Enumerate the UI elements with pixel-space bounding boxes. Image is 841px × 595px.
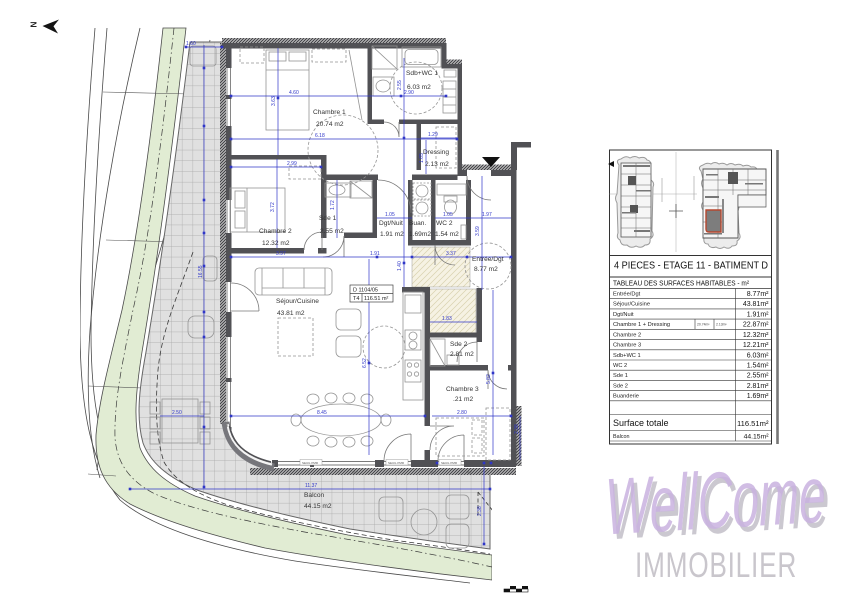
svg-text:6.03 m2: 6.03 m2 [407,84,431,91]
svg-text:Chambre 1: Chambre 1 [313,109,346,116]
svg-text:1.83: 1.83 [442,316,452,322]
svg-text:SEUIL PMR: SEUIL PMR [388,461,405,465]
svg-text:3.37: 3.37 [446,251,456,257]
svg-text:1.69m2: 1.69m2 [409,231,431,238]
svg-text:Séjour/Cuisine: Séjour/Cuisine [613,302,650,308]
svg-text:5.82: 5.82 [486,374,492,384]
svg-text:IMMOBILIER: IMMOBILIER [635,545,797,585]
svg-text:1.29: 1.29 [428,132,438,138]
svg-text:.21 m2: .21 m2 [453,396,473,403]
svg-text:43.81 m2: 43.81 m2 [277,310,305,317]
svg-text:1.91: 1.91 [370,251,380,257]
svg-text:2.50: 2.50 [172,410,182,416]
svg-text:1.54m²: 1.54m² [747,363,769,370]
svg-text:1.91m²: 1.91m² [747,311,769,318]
svg-text:22.87m²: 22.87m² [743,322,769,329]
svg-text:1.69m²: 1.69m² [747,393,769,400]
svg-text:D 1104/05: D 1104/05 [353,288,378,294]
svg-text:44.15m²: 44.15m² [744,434,770,441]
svg-text:Dressing: Dressing [423,149,449,156]
svg-text:TABLEAU DES SURFACES HABITABLE: TABLEAU DES SURFACES HABITABLES - m² [613,279,749,288]
svg-text:3.59: 3.59 [475,226,481,236]
svg-text:Chambre 2: Chambre 2 [613,332,641,338]
svg-text:3.97: 3.97 [276,251,286,257]
svg-text:Sdb+WC 1: Sdb+WC 1 [406,70,438,77]
svg-text:Entrée/Dgt: Entrée/Dgt [613,292,641,298]
svg-text:Chambre 3: Chambre 3 [446,386,479,393]
svg-text:Entrée/Dgt: Entrée/Dgt [472,256,504,263]
svg-text:1.60: 1.60 [186,41,196,47]
svg-text:BSO: BSO [352,471,359,475]
svg-text:8.77m²: 8.77m² [747,291,769,298]
svg-text:1.40: 1.40 [397,261,403,271]
svg-text:PRE: PRE [466,471,472,475]
svg-text:4.60: 4.60 [289,90,299,96]
svg-text:2.81m²: 2.81m² [747,383,769,390]
svg-text:Sdb+WC 1: Sdb+WC 1 [613,353,641,359]
svg-text:116.51 m²: 116.51 m² [364,296,389,302]
svg-text:1.54 m2: 1.54 m2 [435,231,459,238]
svg-text:2.55 m2: 2.55 m2 [320,228,344,235]
svg-text:20.74m²: 20.74m² [697,323,710,327]
svg-text:8.45: 8.45 [317,410,327,416]
svg-text:20.74 m2: 20.74 m2 [316,121,344,128]
svg-text:1.72: 1.72 [330,200,336,210]
svg-text:1.91 m2: 1.91 m2 [380,231,404,238]
svg-text:Dgt/Nuit: Dgt/Nuit [613,312,634,318]
svg-text:Buanderie: Buanderie [613,394,639,400]
svg-text:12.32 m2: 12.32 m2 [262,240,290,247]
svg-text:Chambre 3: Chambre 3 [613,343,641,349]
svg-text:WellCome: WellCome [604,449,826,552]
svg-text:16.55: 16.55 [198,265,204,278]
svg-text:6.03m²: 6.03m² [747,352,769,359]
svg-text:T4: T4 [353,296,359,302]
svg-text:12.32m²: 12.32m² [743,332,769,339]
svg-text:SEUIL PMR: SEUIL PMR [441,461,458,465]
svg-text:116.51m²: 116.51m² [737,419,769,428]
svg-text:44.15 m2: 44.15 m2 [304,503,332,510]
svg-text:Chambre 1 + Dressing: Chambre 1 + Dressing [613,322,670,328]
svg-text:Balcon: Balcon [613,434,629,440]
svg-text:2.13 m2: 2.13 m2 [425,161,449,168]
svg-text:Dgt/Nuit: Dgt/Nuit [379,220,403,227]
svg-text:Séjour/Cuisine: Séjour/Cuisine [276,298,319,305]
svg-text:Sde 2: Sde 2 [450,341,468,348]
svg-text:43.81m²: 43.81m² [743,301,769,308]
svg-text:1.05: 1.05 [443,212,453,218]
svg-text:2.13m²: 2.13m² [716,323,727,327]
svg-text:WC 2: WC 2 [613,363,627,369]
svg-text:6.18: 6.18 [315,133,325,139]
svg-text:4 PIECES - ETAGE 11 - BATIMENT: 4 PIECES - ETAGE 11 - BATIMENT D [614,260,768,272]
svg-text:2.55: 2.55 [397,80,403,90]
svg-text:11.37: 11.37 [305,483,317,489]
svg-text:3.63: 3.63 [271,96,277,106]
svg-text:1.05: 1.05 [385,212,395,218]
svg-text:6.52: 6.52 [362,358,368,368]
svg-text:2.55m²: 2.55m² [747,373,769,380]
svg-text:1.97: 1.97 [482,212,492,218]
svg-text:2.38: 2.38 [477,506,483,516]
svg-text:2.99: 2.99 [287,161,297,167]
svg-text:3.72: 3.72 [270,202,276,212]
svg-text:Sde 1: Sde 1 [613,373,628,379]
svg-text:Sde 1: Sde 1 [319,215,337,222]
svg-text:Buan.: Buan. [409,220,426,227]
svg-text:2.38: 2.38 [514,424,520,434]
svg-text:SEUIL PMR: SEUIL PMR [302,461,319,465]
svg-text:Sde 2: Sde 2 [613,383,628,389]
svg-text:2.81 m2: 2.81 m2 [450,351,474,358]
svg-text:Chambre 2: Chambre 2 [259,228,292,235]
svg-text:2.80: 2.80 [457,410,467,416]
svg-text:Balcon: Balcon [304,492,324,499]
svg-text:Surface totale: Surface totale [613,418,669,428]
svg-text:N: N [29,21,39,27]
svg-text:WC 2: WC 2 [436,220,453,227]
svg-text:12.21m²: 12.21m² [743,342,769,349]
svg-text:8.77 m2: 8.77 m2 [474,266,498,273]
svg-text:BSO: BSO [430,471,437,475]
